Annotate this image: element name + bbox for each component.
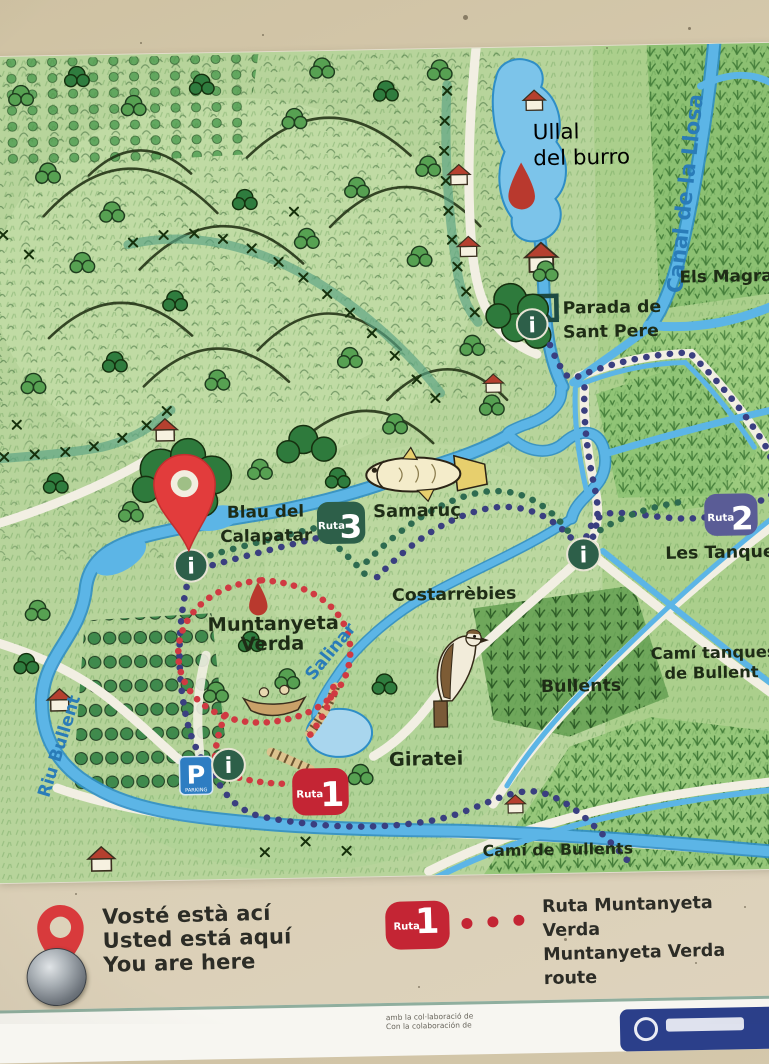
map-canvas: Ruta 3 Ruta 2 Ruta 1 P PARKING i i i i bbox=[0, 43, 769, 883]
sign-bolt bbox=[26, 947, 87, 1006]
info-glyph: i bbox=[187, 554, 195, 580]
label-samaruc: Samaruç bbox=[373, 501, 461, 522]
legend-trail-dot bbox=[461, 918, 472, 929]
label-cami-bullents: Camí de Bullents bbox=[482, 839, 633, 861]
sign-speck bbox=[695, 962, 697, 964]
info-glyph: i bbox=[528, 313, 536, 338]
label-blau-1: Blau del bbox=[227, 502, 304, 522]
sign-speck bbox=[564, 938, 567, 941]
label-parada-2: Sant Pere bbox=[563, 321, 659, 343]
sponsor-logo-wordmark bbox=[666, 1017, 744, 1031]
info-icon-parada: i bbox=[517, 309, 548, 340]
info-icon-parking: i bbox=[212, 749, 245, 782]
legend-trail-dot bbox=[513, 915, 524, 926]
sponsor-logo-mark bbox=[634, 1017, 658, 1041]
route-badge-2: Ruta 2 bbox=[704, 493, 758, 538]
info-icon-pin: i bbox=[174, 549, 207, 582]
legend: Vosté està ací Usted está aquí You are h… bbox=[0, 877, 769, 1018]
label-muntanyeta-2: Verda bbox=[240, 632, 304, 656]
label-ullal-2: del burro bbox=[533, 145, 630, 171]
info-glyph: i bbox=[579, 543, 587, 569]
sign-speck bbox=[688, 27, 691, 30]
legend-trail-dot bbox=[487, 916, 498, 927]
label-blau-2: Calapatar bbox=[220, 525, 313, 545]
you-are-here-line-2: Usted está aquí bbox=[102, 924, 291, 953]
legend-route1-badge: Ruta 1 bbox=[385, 900, 450, 950]
label-giratei: Giratei bbox=[389, 747, 464, 771]
label-les-tanques: Les Tanques bbox=[665, 542, 769, 564]
label-bullents: Bullents bbox=[541, 676, 622, 697]
route-badge-1: Ruta 1 bbox=[292, 768, 349, 816]
label-cami-tanques-1: Camí tanques bbox=[651, 642, 769, 663]
label-parada-1: Parada de bbox=[562, 297, 661, 319]
info-glyph: i bbox=[224, 753, 232, 779]
sponsor-logo bbox=[620, 1006, 769, 1051]
trail-map: Ruta 3 Ruta 2 Ruta 1 P PARKING i i i i bbox=[0, 43, 769, 883]
label-ullal-1: Ullal bbox=[533, 120, 580, 146]
sign-speck bbox=[463, 15, 468, 20]
route1-number: 1 bbox=[320, 775, 345, 815]
sign-speck bbox=[606, 47, 608, 49]
parking-letter: P bbox=[186, 761, 205, 790]
parking-icon: P PARKING bbox=[179, 756, 212, 795]
legend-route1-number: 1 bbox=[415, 902, 440, 943]
sign-speck bbox=[75, 893, 77, 895]
info-icon-tanques: i bbox=[567, 538, 600, 571]
sign-speck bbox=[418, 986, 420, 988]
route-name-line-1: Ruta Muntanyeta Verda bbox=[542, 890, 769, 944]
label-costarrebies: Costarrèbies bbox=[392, 584, 517, 606]
label-els-magran: Els Magran bbox=[679, 266, 769, 287]
route-name-line-2: Muntanyeta Verda route bbox=[543, 938, 769, 992]
credit-line-2: Con la colaboración de bbox=[386, 1020, 474, 1031]
route-badge-3: Ruta 3 bbox=[317, 501, 366, 546]
parking-sublabel: PARKING bbox=[185, 787, 208, 793]
label-cami-tanques-2: de Bullent bbox=[664, 662, 759, 683]
sign-speck bbox=[744, 906, 746, 908]
you-are-here-line-3: You are here bbox=[103, 948, 292, 977]
sign-speck bbox=[140, 42, 142, 44]
route2-number: 2 bbox=[731, 500, 754, 538]
route3-number: 3 bbox=[339, 508, 362, 546]
sign-speck bbox=[262, 34, 264, 36]
